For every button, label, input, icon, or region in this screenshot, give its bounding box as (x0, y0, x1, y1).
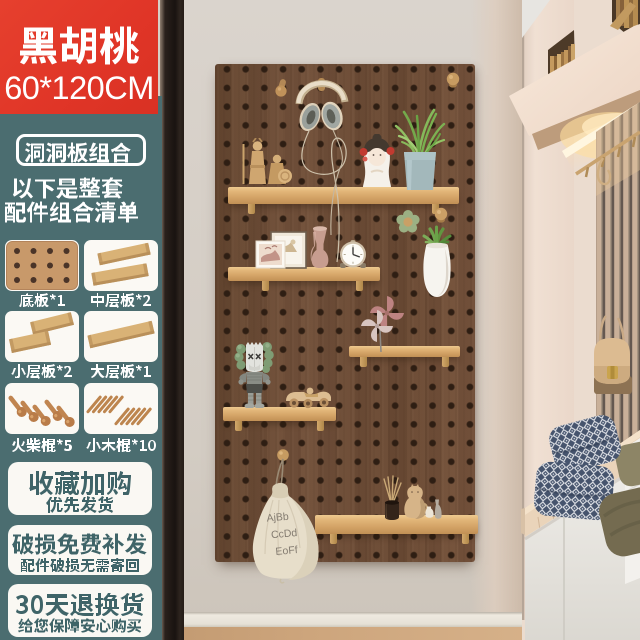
svg-text:AjBb: AjBb (266, 511, 289, 525)
svg-text:EoFf: EoFf (275, 544, 298, 558)
svg-text:CcDd: CcDd (271, 527, 298, 541)
